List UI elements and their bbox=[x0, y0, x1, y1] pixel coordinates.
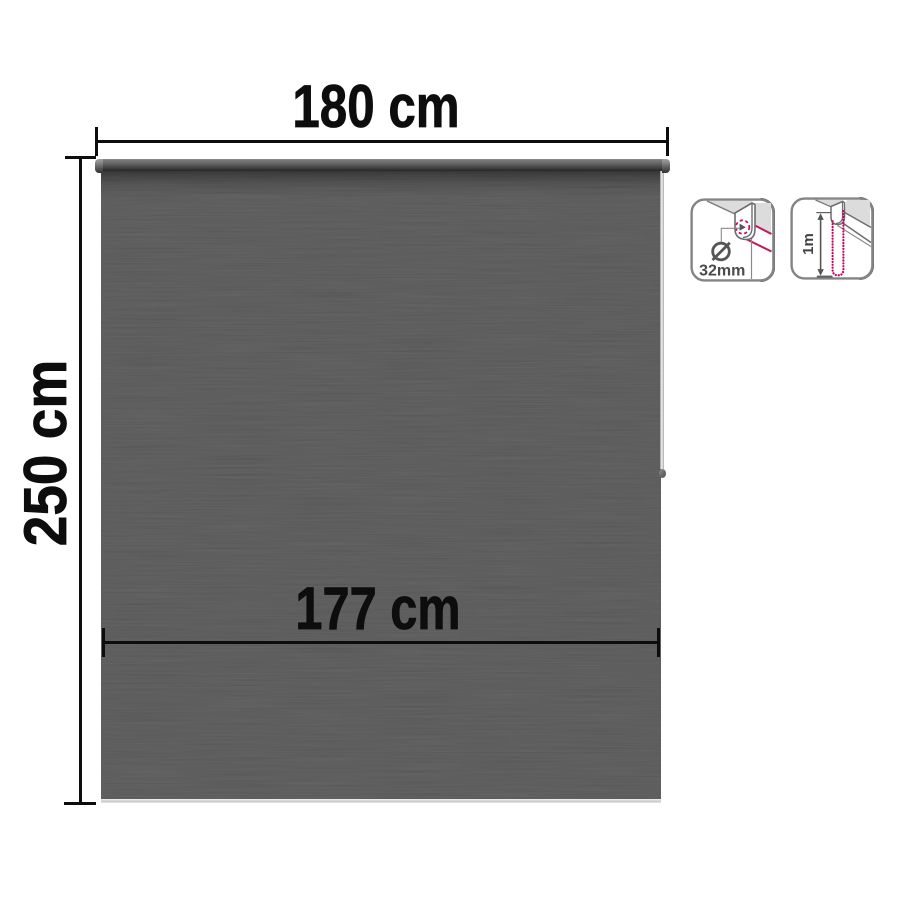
svg-text:1m: 1m bbox=[800, 233, 817, 255]
svg-text:32mm: 32mm bbox=[699, 262, 745, 279]
